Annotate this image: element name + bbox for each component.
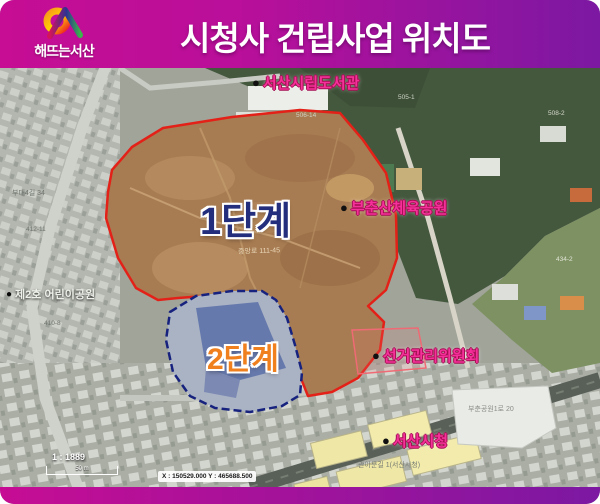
small-building [470, 158, 500, 176]
parcel-label: 505-1 [398, 94, 415, 101]
header-bar: 해뜨는서산 시청사 건립사업 위치도 [0, 0, 600, 68]
phase1-label: 1단계 [200, 190, 291, 245]
map-graphics [0, 68, 600, 487]
location-map-poster: 해뜨는서산 시청사 건립사업 위치도 [0, 0, 600, 504]
map-scale-ratio: 1 : 1889 [52, 452, 85, 462]
poi-library: ● 서산시립도서관 [252, 72, 359, 93]
poi-bullet: ● [382, 433, 390, 448]
poi-bullet: ● [252, 75, 260, 90]
road-label: 중앙로 111-45 [238, 245, 280, 256]
poi-label: 서산시립도서관 [263, 72, 360, 93]
urban-left [0, 68, 120, 398]
poi-label: 부춘산체육공원 [351, 197, 448, 218]
parcel-label: 434-2 [556, 256, 573, 263]
satellite-map: ● 서산시립도서관 ● 부춘산체육공원 ● 선거관리위원회 ● 서산시청 ● 제… [0, 68, 600, 487]
poi-children-park: ● 제2호 어린이공원 [6, 286, 95, 302]
earth-patch [152, 242, 248, 294]
small-building-blue-roof [524, 306, 546, 320]
footer-bar [0, 487, 600, 504]
poi-sports-park: ● 부춘산체육공원 [340, 197, 447, 218]
phase2-label: 2단계 [207, 334, 279, 378]
page-title: 시청사 건립사업 위치도 [0, 12, 600, 60]
map-scale-bar: 50 m [46, 466, 118, 475]
sports-court-sand [396, 168, 422, 190]
parcel-label: 410-8 [44, 320, 61, 327]
poi-election-commission: ● 선거관리위원회 [372, 345, 479, 366]
road-label: 부춘공원1로 20 [468, 404, 514, 414]
poi-label: 서산시청 [393, 430, 448, 451]
road-label: 부대4길 34 [12, 188, 45, 198]
small-building [492, 284, 518, 300]
earth-patch [245, 134, 355, 182]
small-building-orange-roof [570, 188, 592, 202]
parcel-label: 412-11 [26, 226, 46, 233]
poi-label: 선거관리위원회 [383, 345, 480, 366]
small-building [540, 126, 566, 142]
poi-bullet: ● [6, 289, 12, 300]
poi-bullet: ● [340, 200, 348, 215]
road-label: 관아문길 1(서산시청) [358, 460, 420, 470]
parcel-label: 508-2 [548, 110, 565, 117]
scale-bar-label: 50 m [75, 466, 88, 472]
coordinate-readout: X : 150529.000 Y : 465688.500 [158, 471, 256, 482]
small-building-orange-roof [560, 296, 584, 310]
parcel-label: 506-14 [296, 112, 316, 119]
poi-city-hall: ● 서산시청 [382, 430, 448, 451]
poi-label: 제2호 어린이공원 [15, 286, 95, 302]
poi-bullet: ● [372, 348, 380, 363]
earth-patch [280, 230, 380, 286]
